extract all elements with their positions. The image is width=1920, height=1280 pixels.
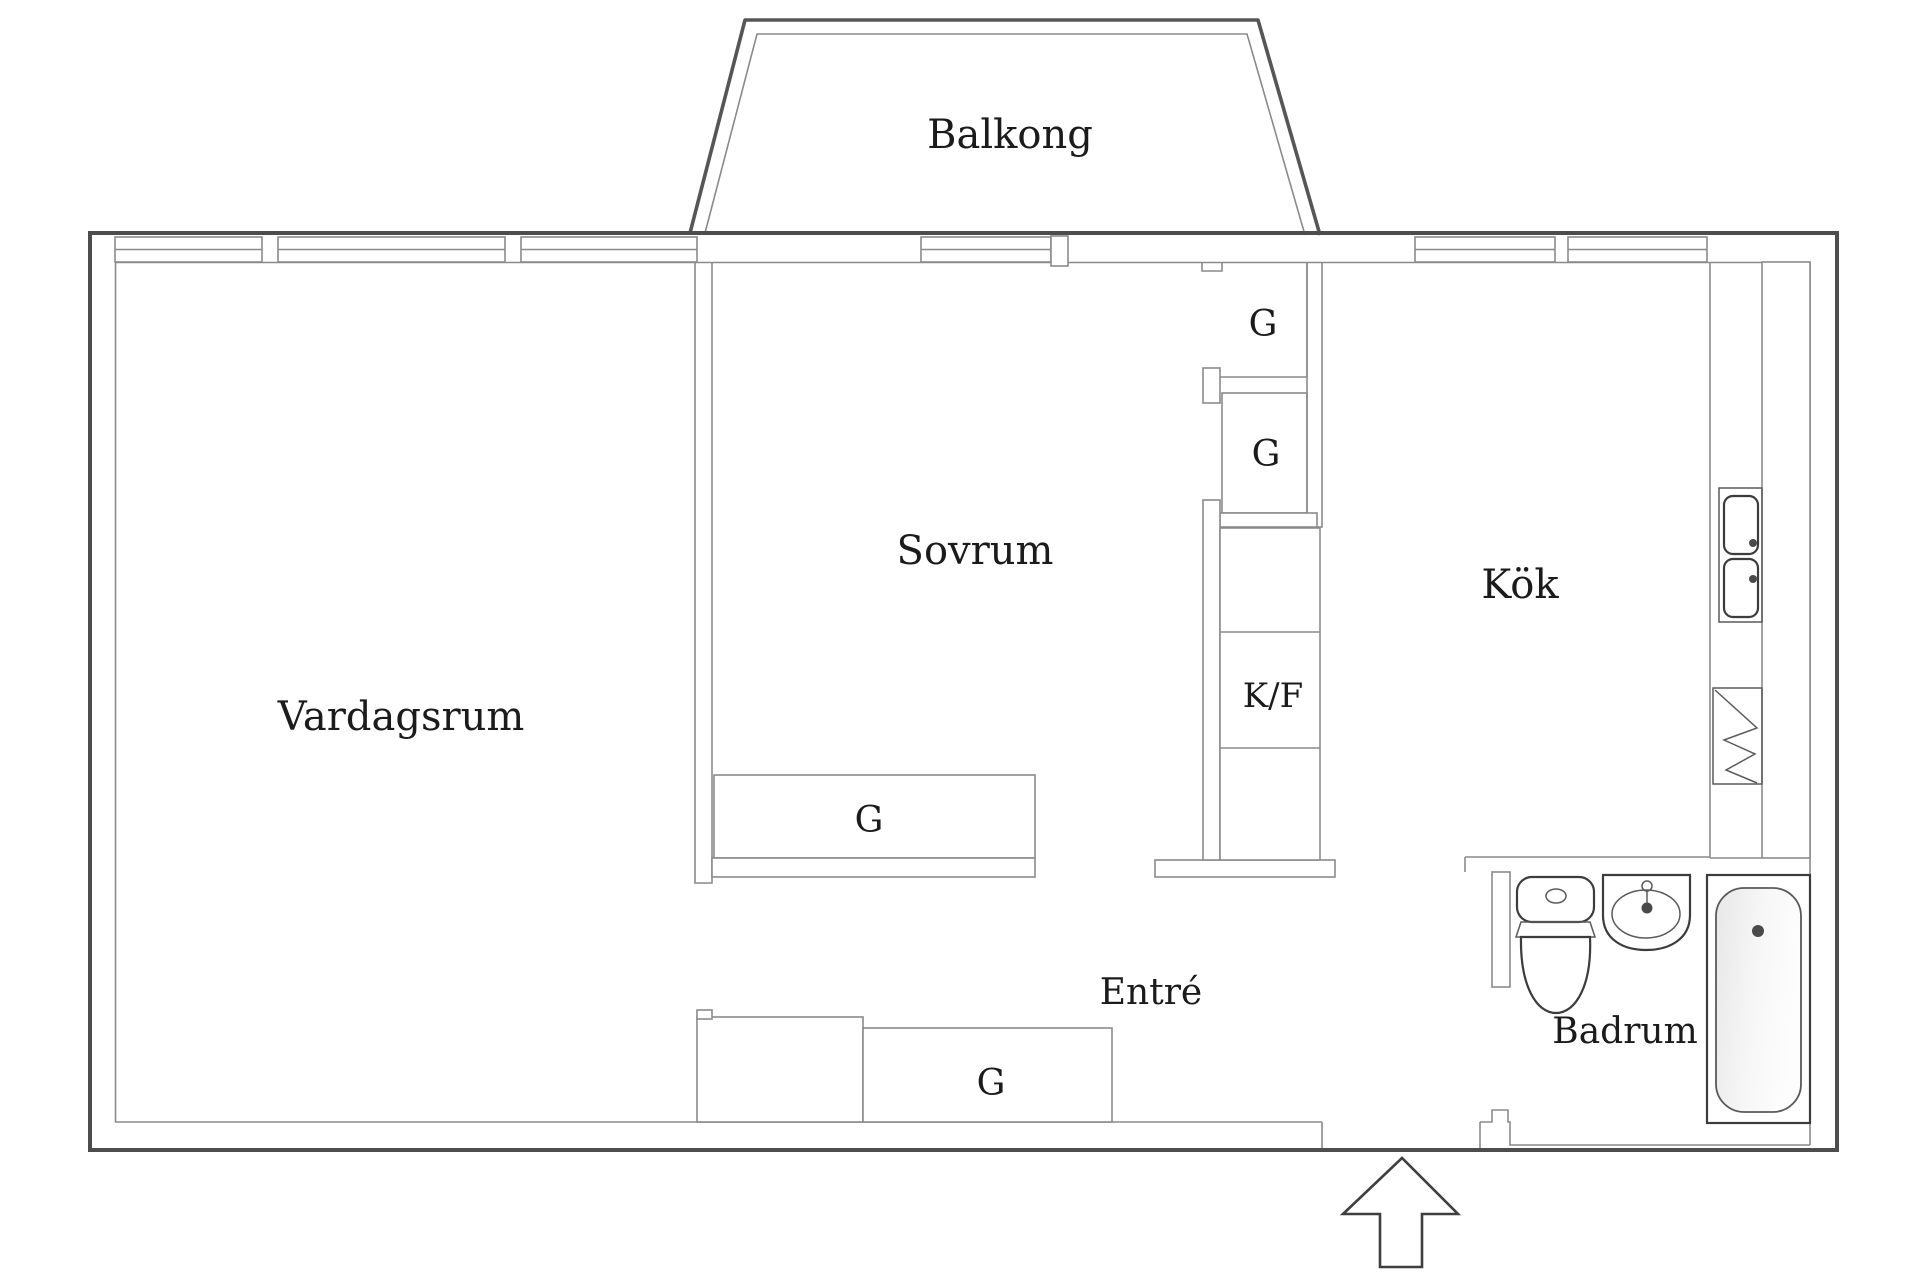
floor-plan: Balkong Vardagsrum Sovrum Kök Entré Badr…	[0, 0, 1920, 1280]
bedroom-south-wall	[712, 858, 1035, 877]
shelf-band	[1220, 513, 1317, 527]
room-label-balkong: Balkong	[927, 112, 1093, 158]
kitchen-sink-icon	[1719, 488, 1762, 622]
wall-livingroom-bedroom	[695, 263, 712, 883]
kitchen-counter	[1710, 262, 1810, 858]
window	[521, 237, 697, 262]
washbasin-icon	[1603, 875, 1690, 950]
wall-stub	[1202, 263, 1222, 271]
toilet-icon	[1516, 877, 1595, 1013]
window	[1415, 237, 1555, 262]
wall-stub	[1203, 368, 1220, 403]
closet-label-g1: G	[1249, 304, 1278, 345]
bathroom-west-wall	[1492, 872, 1510, 987]
closet-label-g2: G	[1252, 434, 1281, 475]
window	[278, 237, 505, 262]
window	[115, 237, 262, 262]
closet-label-kf: K/F	[1243, 676, 1303, 716]
dishwasher-icon	[1713, 688, 1762, 784]
bathtub-icon	[1707, 875, 1810, 1123]
wall-hall-cabinets	[1203, 500, 1220, 860]
wall-closets-kitchen	[1307, 263, 1322, 527]
closet-label-g-bedroom: G	[855, 800, 884, 841]
hall-wall-band	[1155, 860, 1335, 877]
room-label-kok: Kök	[1481, 562, 1559, 608]
room-label-sovrum: Sovrum	[897, 528, 1054, 574]
wall-notch	[697, 1010, 712, 1019]
closet-label-g-hall: G	[977, 1063, 1006, 1104]
balcony-door-window	[921, 236, 1068, 266]
facade-windows	[115, 236, 1707, 266]
room-label-entre: Entré	[1100, 972, 1202, 1013]
room-label-vardagsrum: Vardagsrum	[277, 694, 525, 740]
window	[1568, 237, 1707, 262]
room-label-badrum: Badrum	[1552, 1011, 1698, 1052]
entrance-arrow-icon	[1343, 1158, 1458, 1267]
hall-wall-block	[697, 1017, 863, 1122]
